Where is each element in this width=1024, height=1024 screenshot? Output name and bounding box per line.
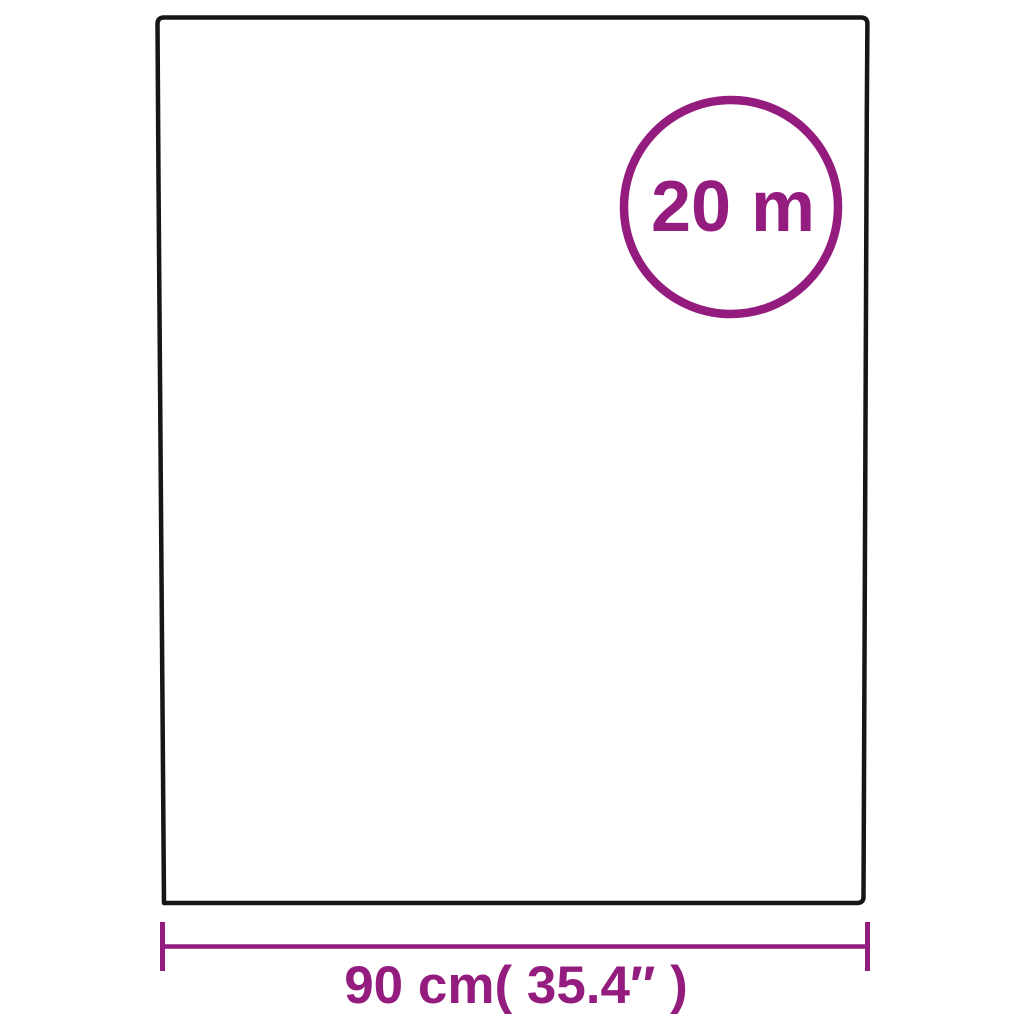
product-dimension-diagram: 20 m 90 cm( 35.4″ ) xyxy=(0,0,1024,1024)
diagram-svg: 20 m 90 cm( 35.4″ ) xyxy=(0,0,1024,1024)
length-badge-label: 20 m xyxy=(651,167,815,247)
width-dimension-label: 90 cm( 35.4″ ) xyxy=(344,956,688,1015)
